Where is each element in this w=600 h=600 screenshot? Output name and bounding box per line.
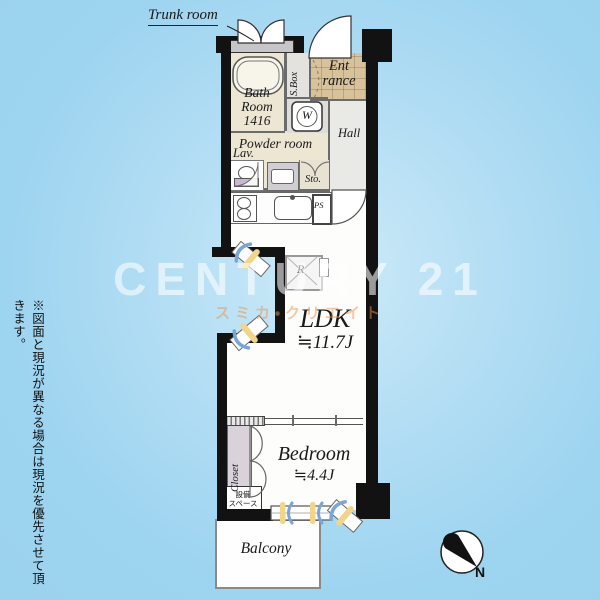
window-icon-corner [324, 496, 365, 536]
floor-plan-image: 設備 スペース [0, 0, 600, 600]
ldk-label: LDK [275, 305, 375, 332]
shoe-box-label: S.Box [289, 56, 300, 96]
balcony-label: Balcony [225, 541, 307, 557]
compass-icon: N [441, 531, 485, 580]
lavatory-label: Lav. [233, 147, 254, 160]
bath-room-label: Bath Room [228, 86, 286, 114]
hall-door-icon [332, 190, 366, 224]
bedroom-size-label: ≒4.4J [262, 468, 366, 485]
closet-label: Closet [230, 430, 242, 492]
entrance-label: Ent rance [314, 59, 364, 89]
trunk-room-label: Trunk room [148, 8, 218, 26]
washer-label: W [300, 109, 314, 122]
window-icon-balcony [271, 502, 332, 524]
lavatory-door-icon [234, 162, 258, 186]
pipe-space-label: PS [314, 201, 323, 210]
hall-label: Hall [338, 127, 360, 140]
storage-label: Sto. [305, 174, 321, 185]
compass-north-label: N [475, 564, 485, 580]
ldk-size-label: ≒11.7J [275, 333, 375, 353]
refrigerator-label: R [297, 263, 304, 276]
window-icon-lower-left [227, 312, 272, 355]
trunk-door-icon [238, 20, 284, 43]
entrance-door-icon [309, 16, 351, 58]
bedroom-label: Bedroom [262, 444, 366, 465]
window-icon-upper [229, 238, 274, 281]
disclaimer-text: ※図面と現況が異なる場合は現況を優先させて頂きます。 [9, 299, 47, 591]
bath-room-size: 1416 [228, 114, 286, 128]
